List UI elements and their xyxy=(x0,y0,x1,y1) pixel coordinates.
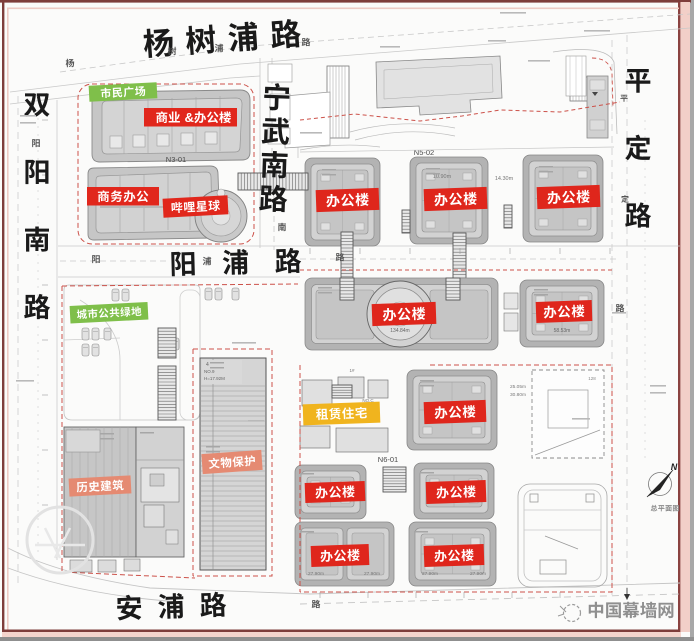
svg-text:N: N xyxy=(671,462,678,472)
svg-text:NO.9: NO.9 xyxy=(204,369,215,374)
svg-text:N6-01: N6-01 xyxy=(378,455,398,464)
svg-text:27.90m: 27.90m xyxy=(422,571,438,577)
svg-text:4: 4 xyxy=(206,362,209,368)
svg-text:25.05m: 25.05m xyxy=(510,384,526,390)
svg-text:128: 128 xyxy=(588,376,596,381)
svg-text:27.90m: 27.90m xyxy=(470,571,486,577)
svg-text:14.30m: 14.30m xyxy=(495,176,514,182)
svg-text:N5-02: N5-02 xyxy=(414,148,434,157)
svg-text:H=17.92M: H=17.92M xyxy=(204,376,225,381)
svg-text:NO.C: NO.C xyxy=(362,398,374,403)
svg-text:1#: 1# xyxy=(349,368,355,373)
svg-text:30.80m: 30.80m xyxy=(510,392,526,398)
svg-text:134.84m: 134.84m xyxy=(390,328,409,334)
svg-text:27.90m: 27.90m xyxy=(308,571,324,577)
svg-text:10.90m: 10.90m xyxy=(433,174,452,180)
svg-text:&: & xyxy=(185,110,195,125)
svg-text:58.53m: 58.53m xyxy=(554,328,571,334)
svg-text:27.90m: 27.90m xyxy=(364,571,380,577)
svg-text:N3-01: N3-01 xyxy=(166,155,186,164)
